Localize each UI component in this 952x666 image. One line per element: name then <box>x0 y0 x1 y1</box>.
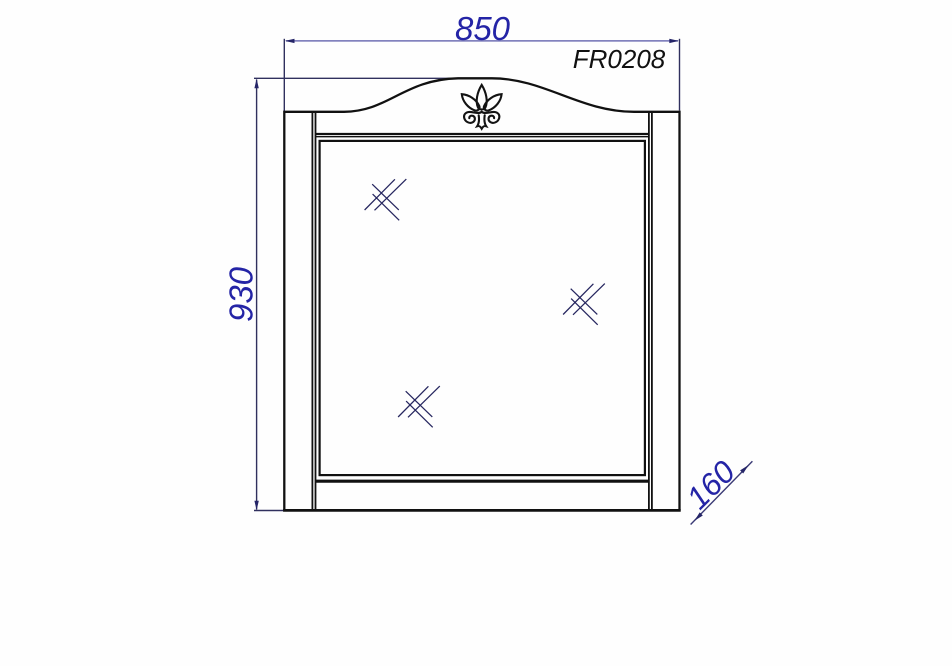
svg-text:930: 930 <box>223 266 260 322</box>
svg-text:850: 850 <box>455 10 511 47</box>
svg-text:FR0208: FR0208 <box>573 44 666 74</box>
svg-text:160: 160 <box>679 453 742 516</box>
